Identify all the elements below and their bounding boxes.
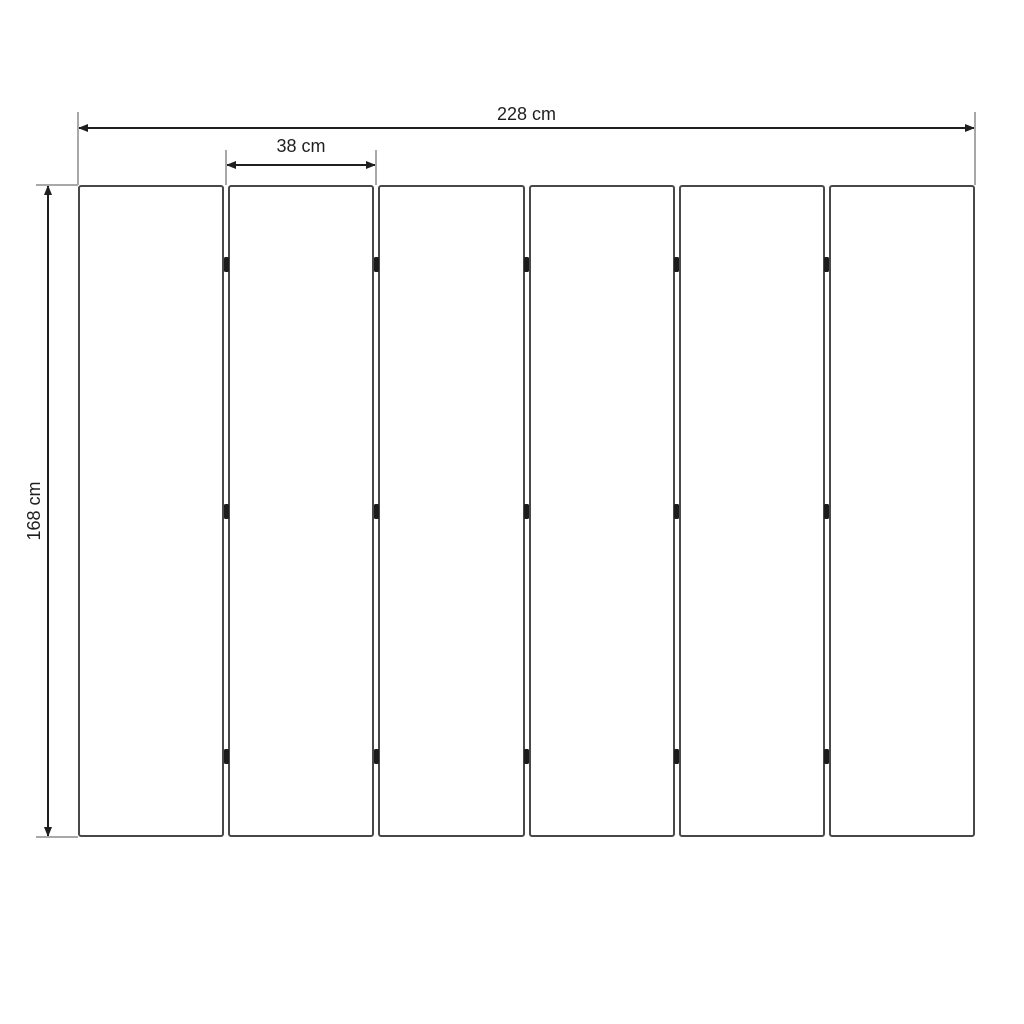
panel (378, 185, 524, 837)
panel-width-label: 38 cm (226, 136, 376, 156)
arrowhead-left-icon (78, 124, 88, 132)
panel (829, 185, 975, 837)
extension-line (225, 150, 227, 185)
total-width-label: 228 cm (78, 104, 975, 124)
panel-row (78, 185, 975, 837)
extension-line (77, 112, 79, 185)
dimension-diagram: 228 cm 38 cm 168 cm (0, 0, 1024, 1024)
panel (679, 185, 825, 837)
arrowhead-left-icon (226, 161, 236, 169)
extension-line (974, 112, 976, 185)
extension-line (36, 184, 78, 186)
panel (529, 185, 675, 837)
height-label: 168 cm (24, 481, 44, 540)
panel (228, 185, 374, 837)
extension-line (36, 836, 78, 838)
arrowhead-up-icon (44, 185, 52, 195)
panel (78, 185, 224, 837)
dimension-total-width: 228 cm (78, 104, 975, 185)
panel-width-dimension-line (226, 164, 376, 166)
dimension-height: 168 cm (36, 185, 78, 837)
dimension-panel-width: 38 cm (226, 138, 376, 185)
height-dimension-line (47, 185, 49, 837)
extension-line (375, 150, 377, 185)
total-width-dimension-line (78, 127, 975, 129)
